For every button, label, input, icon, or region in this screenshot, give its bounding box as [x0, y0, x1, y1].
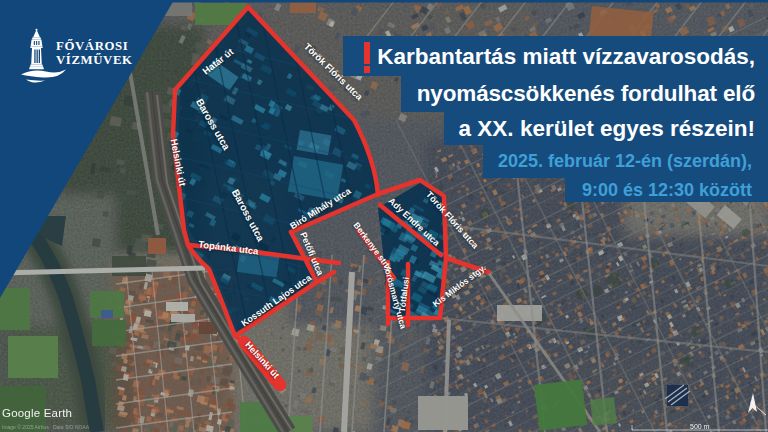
svg-text:500 m: 500 m — [690, 423, 710, 430]
